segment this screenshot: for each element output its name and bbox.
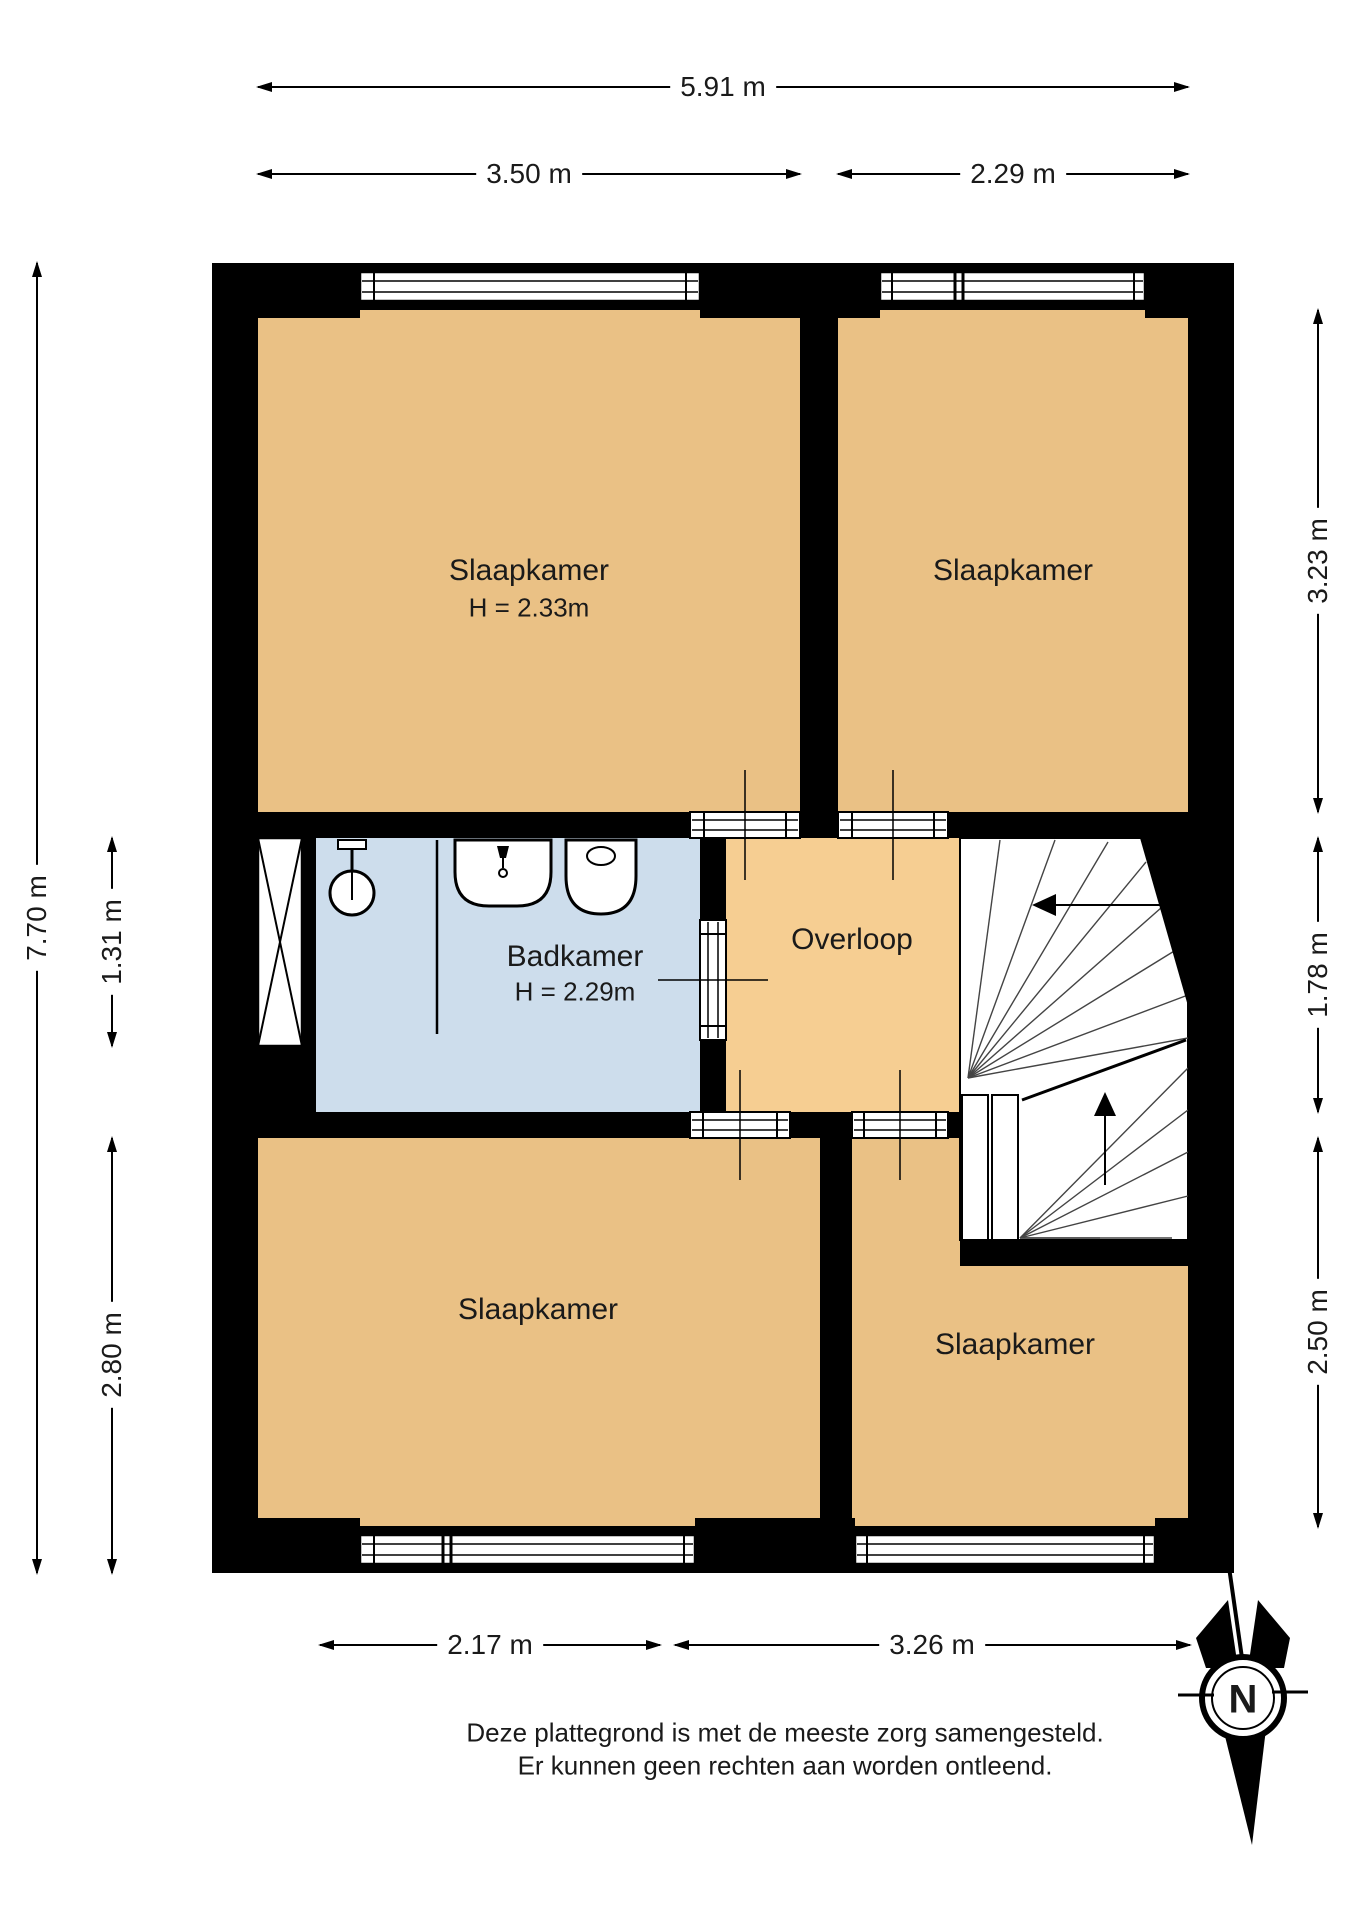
wall-corner-bottom-left (212, 1518, 360, 1573)
wall-closet-right (302, 838, 316, 1046)
wall-corner-top-left (212, 263, 360, 318)
dim-left-total: 7.70 m (21, 865, 53, 971)
window-top-left (360, 272, 700, 301)
room-label-landing: Overloop (791, 923, 913, 957)
stair-entry-tread-2 (992, 1095, 1018, 1240)
dim-left-middle: 1.31 m (96, 889, 128, 995)
room-label-bathroom: Badkamer (507, 940, 644, 974)
disclaimer-line-1: Deze plattegrond is met de meeste zorg s… (466, 1718, 1103, 1749)
window-bottom-right (855, 1535, 1155, 1564)
room-label-bedroom-bottom-left: Slaapkamer (458, 1293, 618, 1327)
compass-north-label: N (1229, 1678, 1258, 1723)
wall-closet-below (258, 1046, 316, 1112)
dim-right-bottom: 2.50 m (1302, 1279, 1334, 1385)
washbasin-icon (455, 840, 551, 906)
room-label-bedroom-top-left: Slaapkamer (449, 554, 609, 588)
room-height-bathroom: H = 2.29m (515, 977, 636, 1008)
wall-pier-bottom-center (695, 1518, 855, 1573)
wall-corner-bottom-right (1155, 1518, 1234, 1573)
stair-entry-tread-1 (962, 1095, 988, 1240)
dim-top-left: 3.50 m (476, 158, 582, 190)
wall-pier-top-center (700, 263, 880, 318)
dim-top-right: 2.29 m (960, 158, 1066, 190)
dim-right-middle: 1.78 m (1302, 922, 1334, 1028)
wall-between-bottom-bedrooms (820, 1138, 852, 1527)
window-top-right (880, 272, 1145, 301)
window-bottom-left (360, 1535, 695, 1564)
floorplan-drawing (0, 0, 1358, 1920)
floorplan-page: Slaapkamer H = 2.33m Slaapkamer Badkamer… (0, 0, 1358, 1920)
room-height-bedroom-top-left: H = 2.33m (469, 593, 590, 624)
room-bedroom-bottom-left (258, 1138, 820, 1527)
dim-top-total: 5.91 m (670, 71, 776, 103)
dim-right-top: 3.23 m (1302, 508, 1334, 614)
disclaimer-line-2: Er kunnen geen rechten aan worden ontlee… (518, 1751, 1053, 1782)
dim-bottom-right: 3.26 m (879, 1629, 985, 1661)
room-landing (726, 838, 960, 1112)
room-label-bedroom-bottom-right: Slaapkamer (935, 1328, 1095, 1362)
room-label-bedroom-top-right: Slaapkamer (933, 554, 1093, 588)
wall-under-stairs (960, 1240, 1188, 1266)
dim-left-bottom: 2.80 m (96, 1302, 128, 1408)
closet (258, 838, 302, 1046)
toilet-icon (566, 840, 636, 914)
dim-bottom-left: 2.17 m (437, 1629, 543, 1661)
wall-between-top-bedrooms (800, 310, 838, 812)
wall-corner-top-right (1145, 263, 1234, 318)
staircase (960, 838, 1188, 1240)
